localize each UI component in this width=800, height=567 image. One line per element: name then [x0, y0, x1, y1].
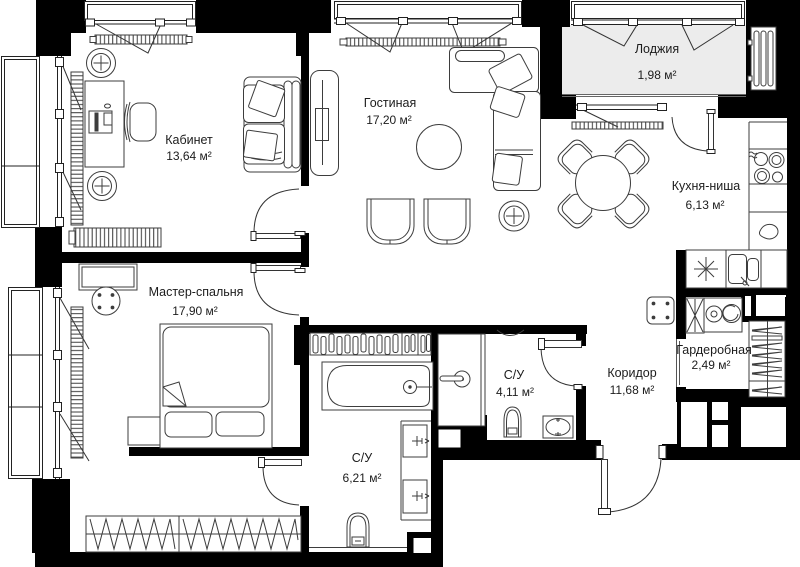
svg-text:17,90 м²: 17,90 м² — [172, 304, 218, 318]
svg-text:2,49 м²: 2,49 м² — [692, 358, 731, 372]
svg-text:Гостиная: Гостиная — [364, 96, 416, 110]
svg-text:11,68 м²: 11,68 м² — [610, 383, 655, 397]
svg-text:6,13 м²: 6,13 м² — [686, 198, 725, 212]
svg-text:Кухня-ниша: Кухня-ниша — [672, 179, 741, 193]
svg-text:13,64 м²: 13,64 м² — [166, 149, 212, 163]
svg-text:С/У: С/У — [352, 451, 373, 465]
svg-text:6,21 м²: 6,21 м² — [343, 471, 382, 485]
svg-text:17,20 м²: 17,20 м² — [366, 113, 412, 127]
svg-text:Кабинет: Кабинет — [165, 133, 213, 147]
svg-text:Коридор: Коридор — [607, 366, 656, 380]
svg-text:Гардеробная: Гардеробная — [676, 343, 752, 357]
svg-text:Мастер-спальня: Мастер-спальня — [149, 285, 244, 299]
svg-text:С/У: С/У — [504, 368, 525, 382]
svg-text:Лоджия: Лоджия — [635, 42, 679, 56]
svg-text:4,11 м²: 4,11 м² — [496, 385, 534, 399]
svg-text:1,98 м²: 1,98 м² — [638, 68, 677, 82]
